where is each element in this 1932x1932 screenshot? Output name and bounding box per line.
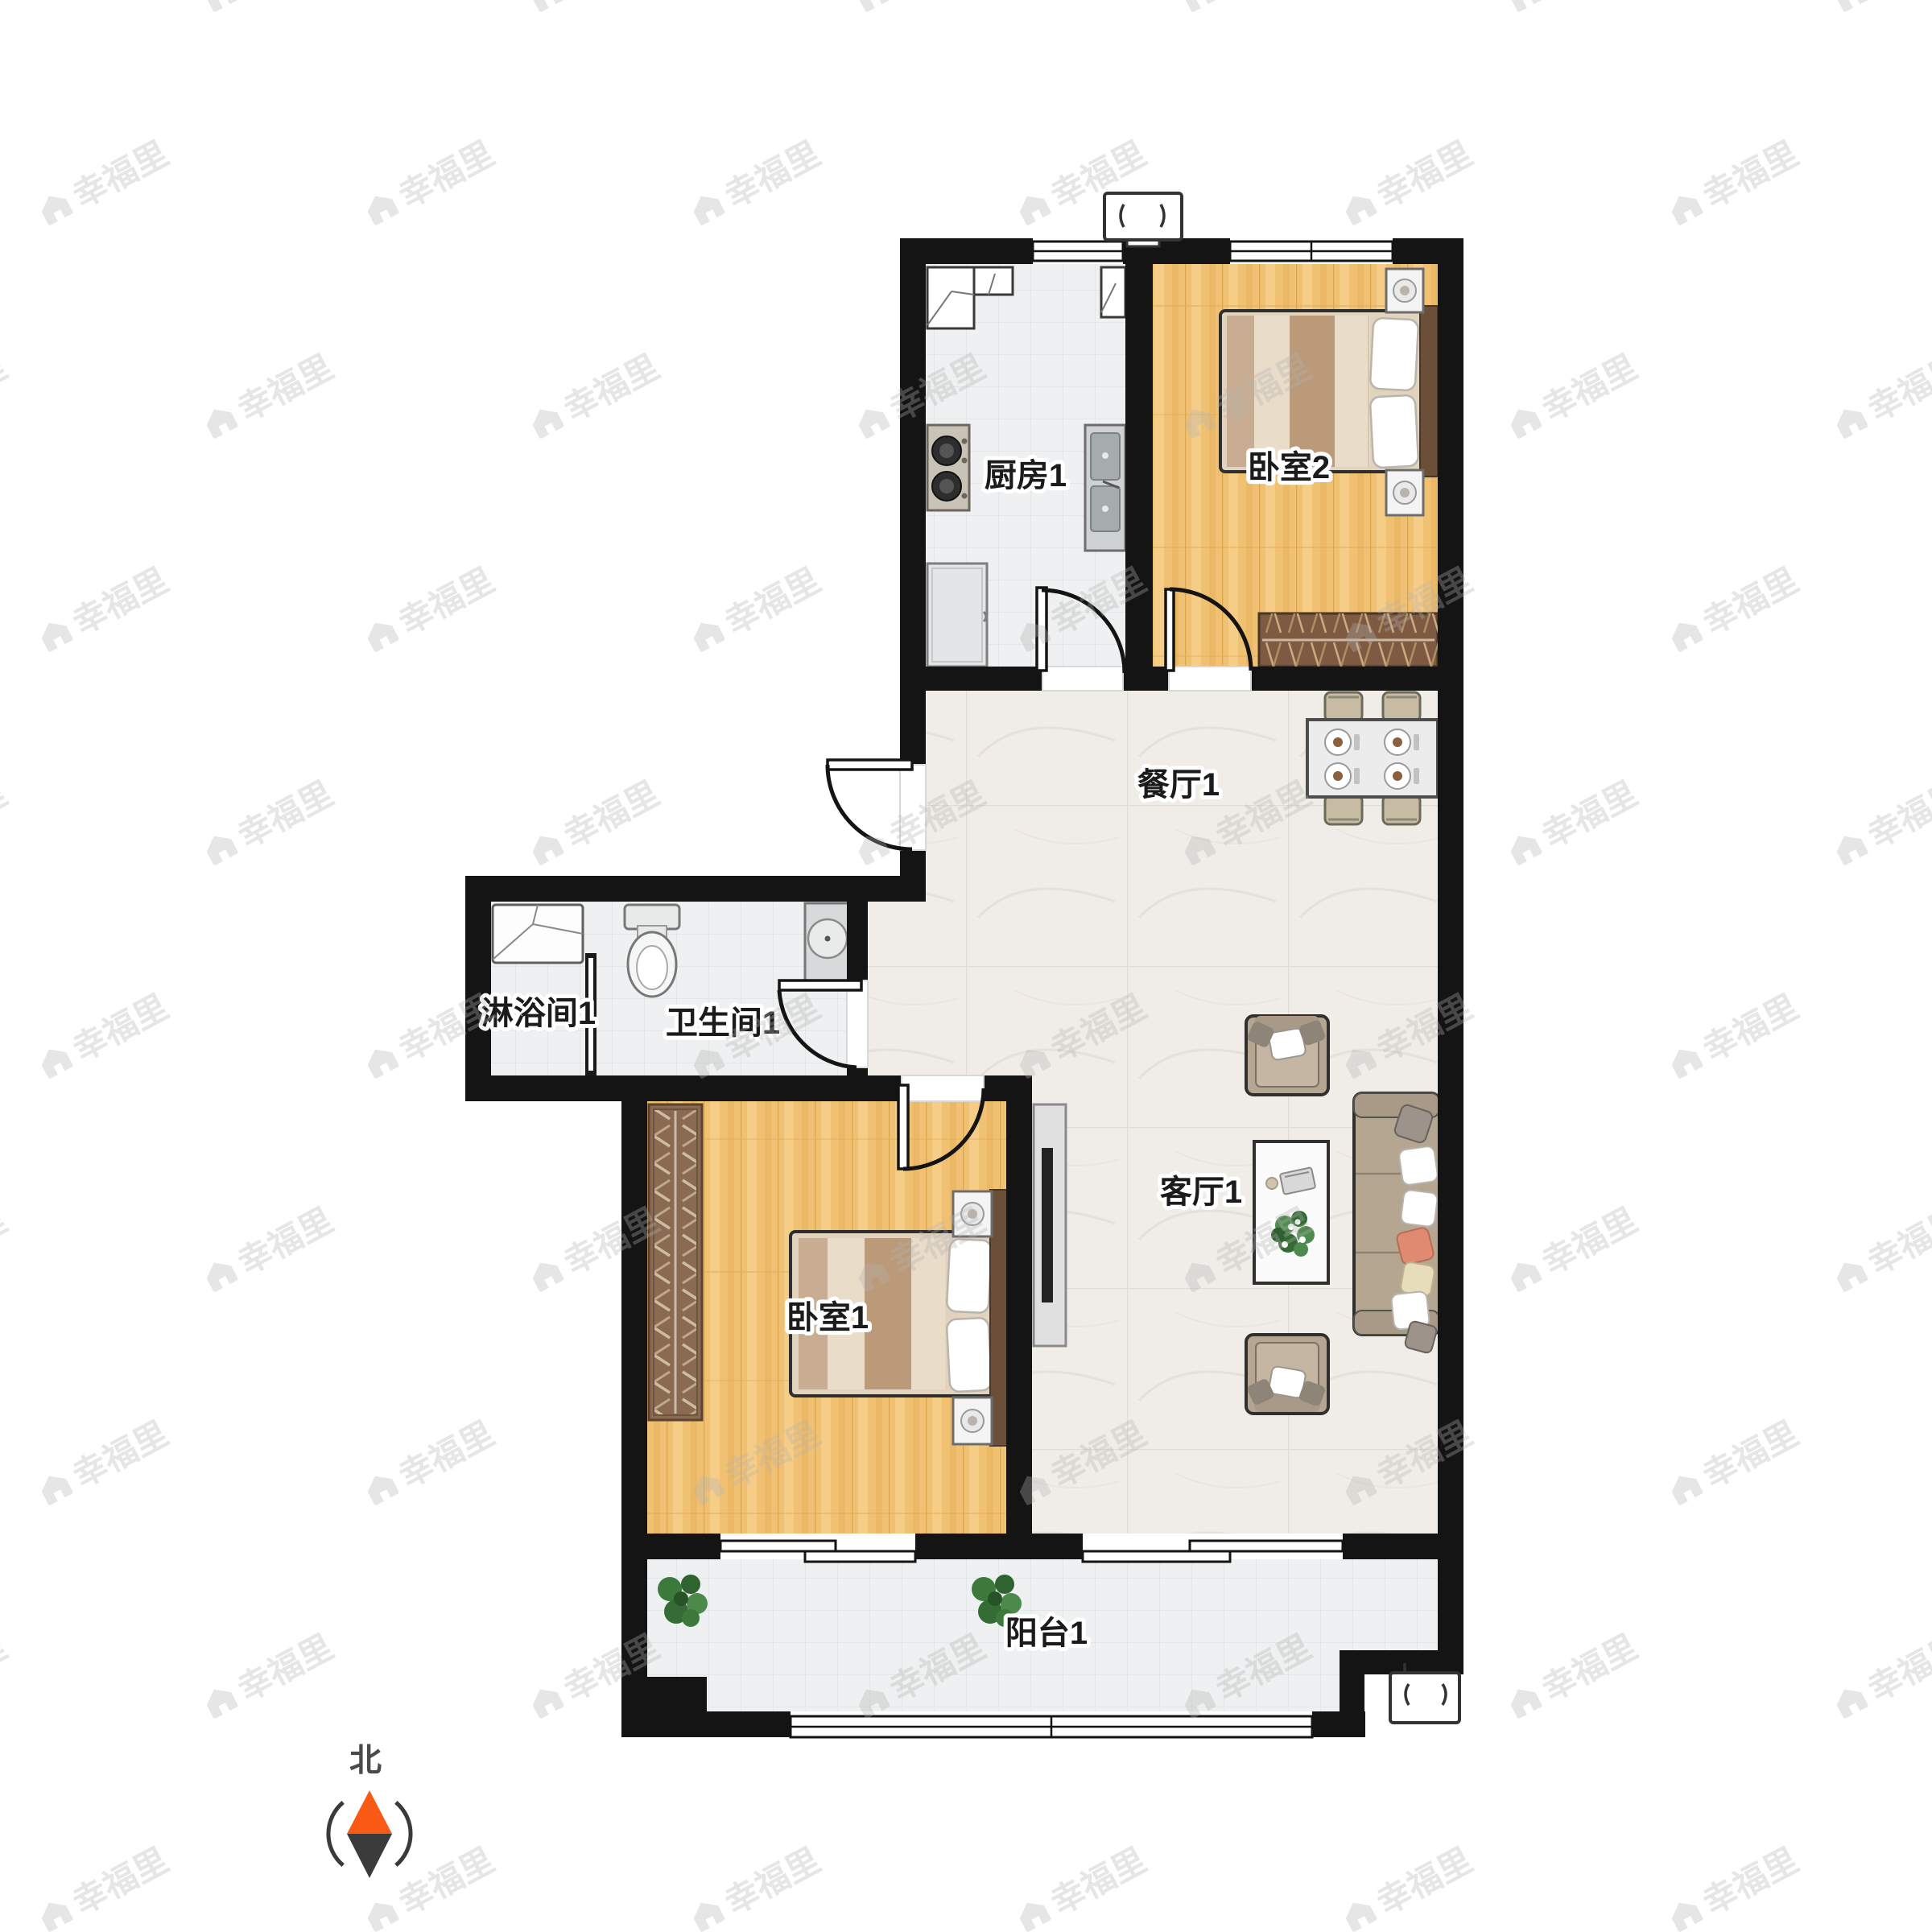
pillow	[1396, 1227, 1435, 1265]
nightstand	[953, 1191, 992, 1236]
fridge	[927, 563, 987, 667]
dining-chair	[1325, 692, 1362, 721]
sliding-door	[720, 1541, 915, 1562]
bathroom-label: 卫生间1	[666, 1005, 780, 1041]
pillow	[947, 1239, 993, 1314]
dining-chair	[1325, 795, 1362, 824]
wall	[621, 1101, 647, 1559]
pillow	[1370, 318, 1419, 391]
wall	[465, 876, 926, 902]
kitchen-label: 厨房1	[985, 458, 1067, 493]
wall	[1123, 667, 1169, 691]
pillow	[1398, 1146, 1439, 1186]
toilet	[625, 905, 679, 997]
window	[1033, 242, 1123, 261]
nightstand	[953, 1397, 992, 1444]
wall	[1364, 1650, 1463, 1674]
stove	[927, 425, 969, 510]
pillow	[1370, 395, 1419, 469]
wall	[1251, 667, 1438, 691]
pillow	[1401, 1190, 1439, 1228]
wall	[926, 667, 1042, 691]
nightstand	[1386, 269, 1423, 312]
cup	[1266, 1178, 1278, 1189]
dining-chair	[1383, 692, 1420, 721]
balcony-label: 阳台1	[1005, 1616, 1088, 1651]
entry-door	[828, 760, 926, 850]
wall	[847, 902, 868, 980]
floorplan-image: 厨房1 卧室2 餐厅1 淋浴间1 卫生间1 卧室1 客厅1 阳台1 北 幸福里幸…	[0, 0, 1932, 1932]
armchair	[1246, 1335, 1328, 1414]
balcony-window	[791, 1716, 1312, 1737]
north-needle	[347, 1790, 392, 1834]
kitchen-sink	[1085, 425, 1125, 551]
nightstand	[1386, 470, 1423, 515]
compass-ring	[328, 1802, 343, 1865]
dining-label: 餐厅1	[1137, 767, 1220, 803]
headboard	[1420, 306, 1438, 477]
wall	[1340, 1650, 1364, 1737]
south-needle	[347, 1834, 392, 1878]
compass-ring	[396, 1802, 411, 1865]
wall	[707, 1711, 791, 1737]
wall	[1125, 264, 1153, 667]
living-label: 客厅1	[1160, 1174, 1242, 1210]
wall	[621, 1677, 707, 1737]
ac-unit	[1104, 193, 1182, 246]
water-heater	[1101, 267, 1125, 317]
tv-panel	[1034, 1104, 1066, 1346]
ac-unit	[1390, 1663, 1459, 1723]
bedroom1-label: 卧室1	[786, 1300, 869, 1335]
wall	[621, 1559, 647, 1677]
sofa	[1354, 1093, 1439, 1354]
dining-chair	[1383, 795, 1420, 824]
wall	[621, 1075, 902, 1101]
shower-label: 淋浴间1	[481, 996, 596, 1031]
wall	[1343, 1534, 1463, 1559]
window	[1230, 242, 1393, 261]
dining-table	[1307, 720, 1438, 797]
wall	[1438, 238, 1463, 1674]
bedroom2-label: 卧室2	[1248, 450, 1330, 485]
sliding-door	[1083, 1541, 1343, 1562]
wall	[621, 1534, 720, 1559]
compass: 北	[328, 1743, 411, 1878]
wardrobe	[649, 1104, 702, 1420]
pillow	[947, 1318, 993, 1393]
bench	[1259, 613, 1438, 667]
shower-tray	[493, 905, 583, 963]
pillow	[1404, 1320, 1438, 1354]
floorplan-drawing: 厨房1 卧室2 餐厅1 淋浴间1 卫生间1 卧室1 客厅1 阳台1 北	[0, 0, 1932, 1932]
hall-floor	[868, 902, 926, 1075]
armchair	[1246, 1016, 1328, 1095]
coffee-table	[1254, 1141, 1328, 1283]
wall	[1006, 1075, 1032, 1559]
wall	[900, 238, 926, 765]
north-label: 北	[349, 1743, 382, 1778]
wall	[915, 1534, 1083, 1559]
